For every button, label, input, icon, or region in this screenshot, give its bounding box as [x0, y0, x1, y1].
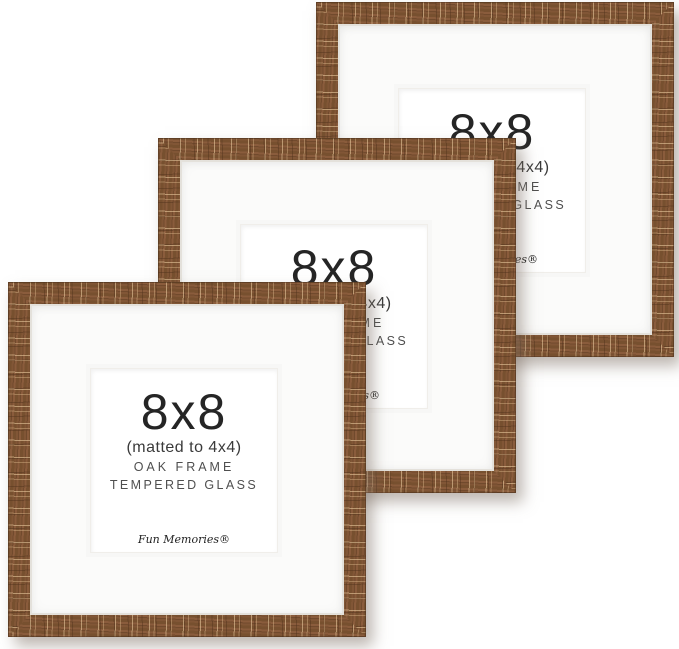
frame-wood-right — [652, 2, 674, 357]
picture-frame-front: 8x8 (matted to 4x4) OAK FRAME TEMPERED G… — [8, 282, 366, 637]
product-photo: 8x8 (matted to 4x4) OAK FRAME TEMPERED G… — [0, 0, 679, 649]
frame-wood-top — [8, 282, 366, 304]
frame-size-label: 8x8 — [141, 387, 228, 437]
mat-opening: 8x8 (matted to 4x4) OAK FRAME TEMPERED G… — [90, 368, 278, 553]
frame-wood-left — [8, 282, 30, 637]
mat-board: 8x8 (matted to 4x4) OAK FRAME TEMPERED G… — [30, 304, 344, 615]
frame-wood-top — [316, 2, 674, 24]
frame-wood-top — [158, 138, 516, 160]
frame-wood-right — [344, 282, 366, 637]
frame-wood-bottom — [8, 615, 366, 637]
glass-label: TEMPERED GLASS — [110, 477, 258, 493]
matted-size-label: (matted to 4x4) — [126, 439, 241, 457]
brand-logo: Fun Memories® — [138, 534, 230, 546]
frame-wood-right — [494, 138, 516, 493]
material-label: OAK FRAME — [134, 459, 235, 475]
